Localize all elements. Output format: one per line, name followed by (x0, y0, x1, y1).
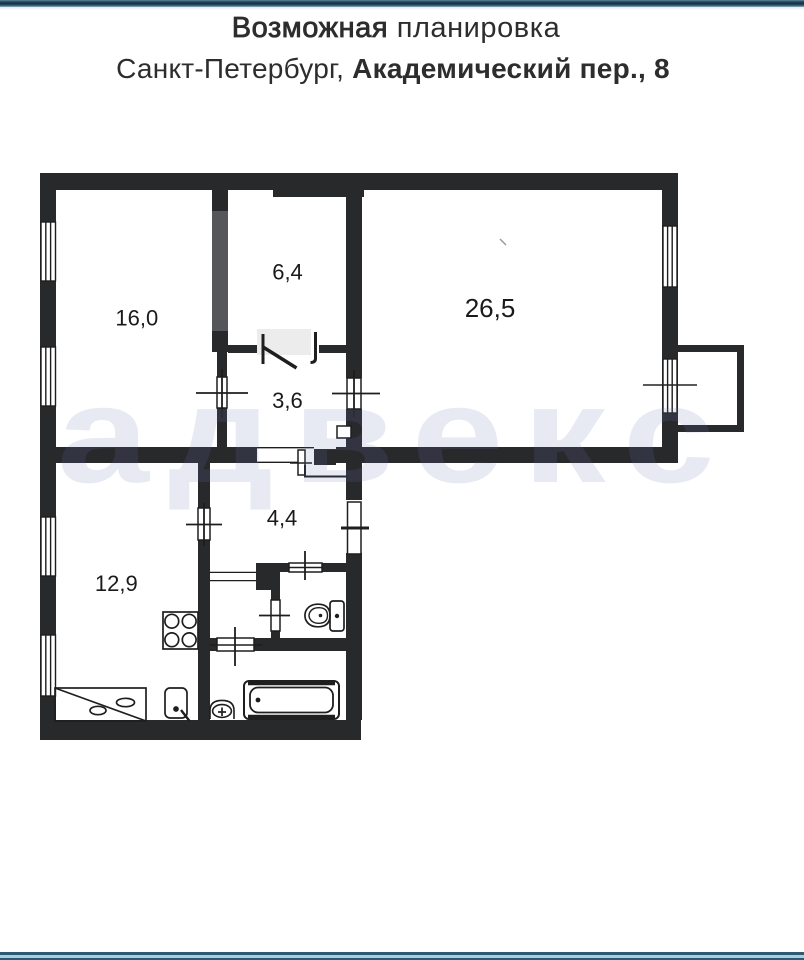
svg-text:12,9: 12,9 (95, 571, 138, 596)
svg-text:16,0: 16,0 (115, 305, 158, 330)
svg-text:26,5: 26,5 (465, 293, 516, 323)
svg-text:адвекс: адвекс (57, 358, 734, 512)
svg-text:6,4: 6,4 (272, 260, 303, 285)
